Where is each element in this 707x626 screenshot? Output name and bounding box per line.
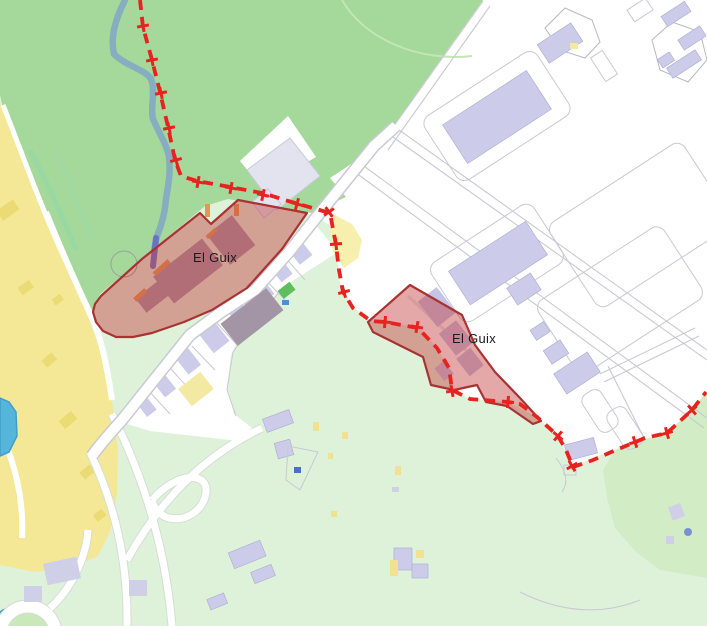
label-el-guix-east: El Guix	[452, 331, 496, 346]
label-el-guix-west: El Guix	[193, 250, 237, 265]
map-canvas[interactable]: El Guix El Guix	[0, 0, 707, 626]
map-viewport[interactable]: El Guix El Guix	[0, 0, 707, 626]
pool	[282, 300, 289, 305]
